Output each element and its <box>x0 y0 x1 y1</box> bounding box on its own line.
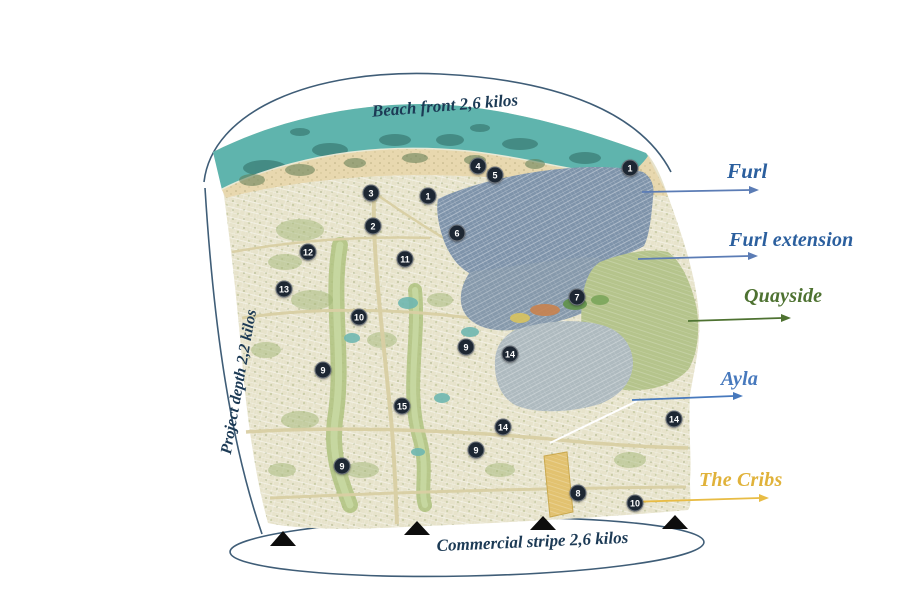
masterplan-canvas: Beach front 2,6 kilos Project depth 2,2 … <box>0 0 900 600</box>
quayside-arrow-head <box>781 314 791 322</box>
quayside-arrow <box>688 318 782 321</box>
up-triangle <box>270 531 296 546</box>
cribs-arrow-head <box>759 494 769 502</box>
district-label-ayla: Ayla <box>721 368 758 391</box>
district-label-furl: Furl <box>727 159 768 184</box>
ayla-arrow-head <box>733 392 743 400</box>
district-label-furl-extension: Furl extension <box>729 229 854 252</box>
up-triangle <box>662 515 688 529</box>
district-label-the-cribs: The Cribs <box>699 469 782 492</box>
furl-arrow-head <box>749 186 759 194</box>
furl-extension-arrow-head <box>748 252 758 260</box>
district-label-quayside: Quayside <box>744 285 822 308</box>
